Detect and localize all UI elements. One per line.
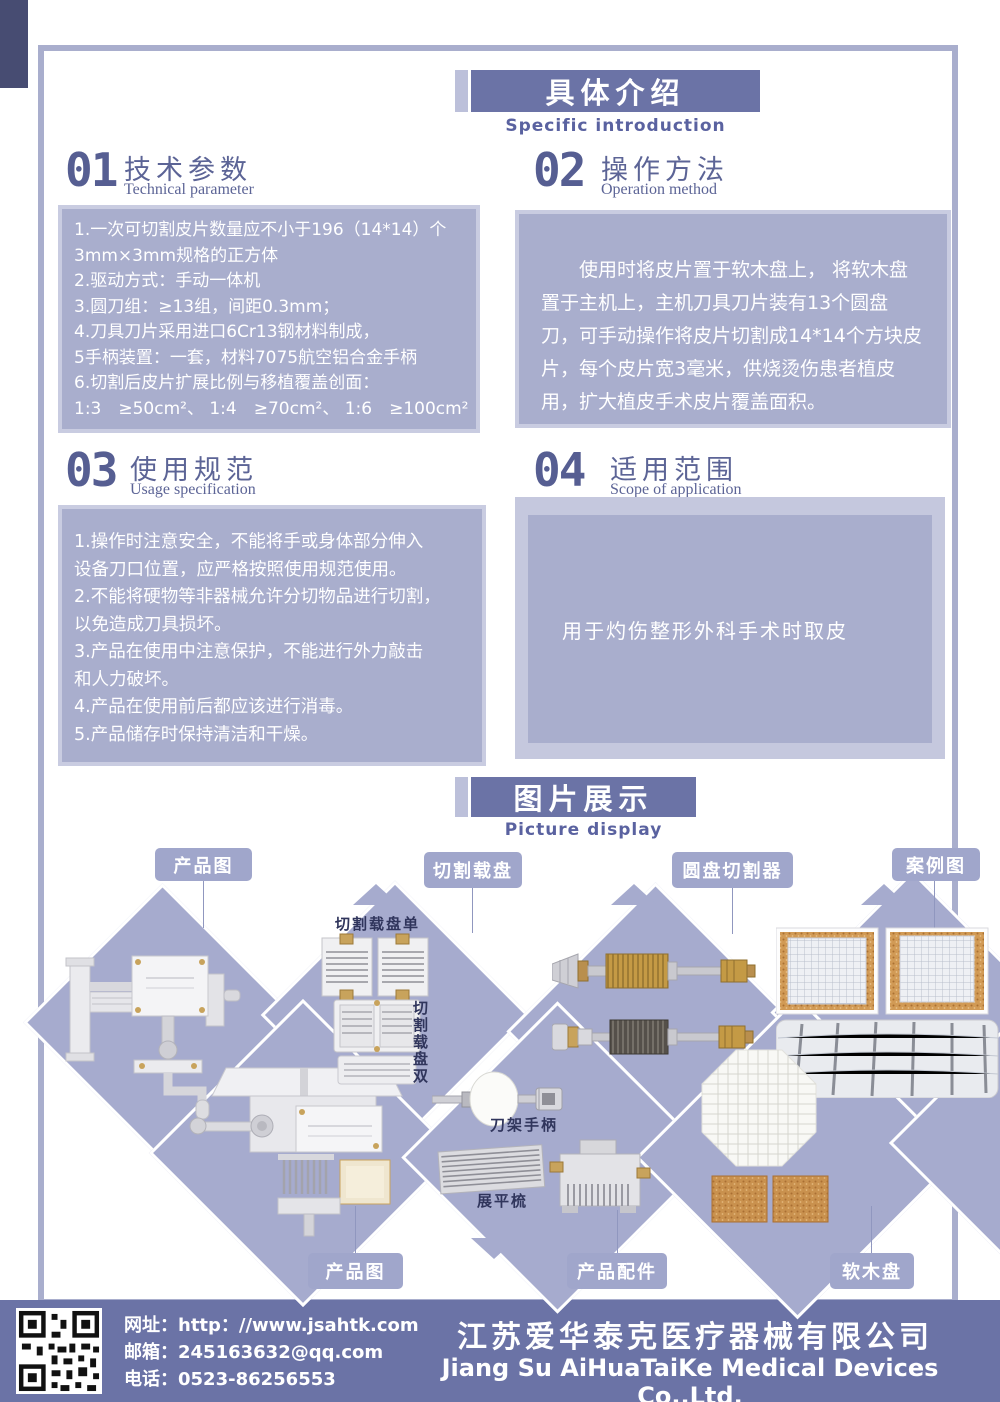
section-03-subtitle: Usage specification	[130, 481, 256, 499]
brochure-page: 具体介绍 Specific introduction 01 技术参数 Techn…	[0, 0, 1000, 1402]
website-value[interactable]: http：//www.jsahtk.com	[178, 1315, 419, 1336]
spec-line: 1:3 ≥50cm²、 1:4 ≥70cm²、 1:6 ≥100cm²	[74, 397, 464, 423]
section-02-number: 02	[533, 143, 584, 197]
qr-code	[16, 1308, 102, 1394]
footer-bar: 网址：http：//www.jsahtk.com 邮箱：245163632@qq…	[0, 1300, 1000, 1402]
gallery-label-case: 案例图	[892, 848, 980, 881]
connector-line	[472, 888, 473, 933]
section-04-outer-box: 用于灼伤整形外科手术时取皮	[515, 497, 945, 759]
spec-line: 6.切割后皮片扩展比例与移植覆盖创面：	[74, 371, 464, 397]
spec-line: 1.一次可切割皮片数量应不小于196（14*14）个	[74, 218, 464, 244]
label-tray-double: 切割载盘双	[410, 1000, 431, 1095]
section-03-content-box: 1.操作时注意安全，不能将手或身体部分伸入 设备刀口位置，应严格按照使用规范使用…	[58, 505, 486, 766]
spec-line: 4.刀具刀片采用进口6Cr13钢材料制成，	[74, 320, 464, 346]
scope-text: 用于灼伤整形外科手术时取皮	[528, 615, 848, 644]
contact-phone: 电话：0523-86256553	[124, 1366, 336, 1393]
spec-line: 3.圆刀组：≥13组，间距0.3mm；	[74, 295, 464, 321]
header-accent-bar	[455, 70, 468, 112]
label-flattening-comb: 展平梳	[477, 1190, 528, 1211]
gallery-label-product-bottom: 产品图	[308, 1253, 403, 1289]
cork-tray-photo	[688, 1042, 850, 1224]
usage-line: 1.操作时注意安全，不能将手或身体部分伸入	[74, 529, 470, 557]
spec-line: 2.驱动方式：手动一体机	[74, 269, 464, 295]
company-name-en: Jiang Su AiHuaTaiKe Medical Devices Co.,…	[390, 1354, 990, 1402]
gallery-label-product-top: 产品图	[155, 848, 252, 881]
accessories-photo	[432, 1068, 664, 1218]
phone-value: 0523-86256553	[178, 1369, 336, 1390]
usage-line: 和人力破坏。	[74, 667, 470, 695]
gallery-title: 图片展示	[513, 776, 653, 818]
email-value[interactable]: 245163632@qq.com	[178, 1342, 383, 1363]
spec-line: 5手柄装置：一套，材料7075航空铝合金手柄	[74, 346, 464, 372]
section-01-content-box: 1.一次可切割皮片数量应不小于196（14*14）个 3mm×3mm规格的正方体…	[58, 205, 480, 433]
section-02-content-box: 使用时将皮片置于软木盘上， 将软木盘置于主机上，主机刀具刀片装有13个圆盘刀，可…	[515, 210, 951, 428]
diamond-tip-up-icon	[861, 884, 907, 905]
usage-line: 2.不能将硬物等非器械允许分切物品进行切割，	[74, 584, 470, 612]
page-title: 具体介绍	[545, 70, 685, 112]
operation-paragraph: 使用时将皮片置于软木盘上， 将软木盘置于主机上，主机刀具刀片装有13个圆盘刀，可…	[541, 254, 925, 419]
usage-line: 4.产品在使用前后都应该进行消毒。	[74, 694, 470, 722]
contact-email: 邮箱：245163632@qq.com	[124, 1339, 383, 1366]
usage-line: 3.产品在使用中注意保护，不能进行外力敲击	[74, 639, 470, 667]
gallery-label-disc-cutter: 圆盘切割器	[672, 852, 793, 888]
connector-line	[934, 881, 935, 928]
product-machine-photo-2	[188, 1062, 418, 1242]
section-04-content-box: 用于灼伤整形外科手术时取皮	[528, 515, 932, 743]
email-label: 邮箱：	[124, 1342, 178, 1363]
diamond-tip-down-icon	[732, 1238, 778, 1259]
connector-line	[871, 1206, 872, 1253]
connector-line	[203, 880, 204, 928]
label-tray-single: 切割载盘单	[335, 913, 420, 934]
gallery-label-accessories: 产品配件	[567, 1253, 667, 1289]
usage-line: 5.产品储存时保持清洁和干燥。	[74, 722, 470, 750]
gallery-accent-bar	[455, 777, 468, 817]
gallery-label-cutting-tray: 切割载盘	[424, 852, 522, 888]
section-01-number: 01	[65, 143, 116, 197]
label-knife-handle: 刀架手柄	[490, 1114, 558, 1135]
page-subtitle: Specific introduction	[471, 116, 760, 136]
section-02-subtitle: Operation method	[601, 181, 717, 199]
gallery-label-cork-tray: 软木盘	[830, 1253, 914, 1289]
diamond-tip-up-icon	[353, 884, 399, 905]
page-title-bar: 具体介绍	[471, 70, 760, 112]
connector-line	[732, 888, 733, 934]
company-name-cn: 江苏爱华泰克医疗器械有限公司	[400, 1312, 990, 1356]
section-01-subtitle: Technical parameter	[124, 181, 254, 199]
section-04-number: 04	[533, 443, 584, 497]
diamond-tip-down-icon	[471, 1238, 517, 1259]
corner-accent-bar	[0, 0, 28, 88]
section-03-number: 03	[65, 443, 116, 497]
usage-line: 以免造成刀具损坏。	[74, 612, 470, 640]
spec-line: 3mm×3mm规格的正方体	[74, 244, 464, 270]
diamond-tip-up-icon	[611, 884, 657, 905]
contact-website: 网址：http：//www.jsahtk.com	[124, 1312, 419, 1339]
website-label: 网址：	[124, 1315, 178, 1336]
gallery-title-bar: 图片展示	[471, 777, 696, 817]
usage-line: 设备刀口位置，应严格按照使用规范使用。	[74, 557, 470, 585]
gallery-subtitle: Picture display	[471, 820, 696, 840]
phone-label: 电话：	[124, 1369, 178, 1390]
